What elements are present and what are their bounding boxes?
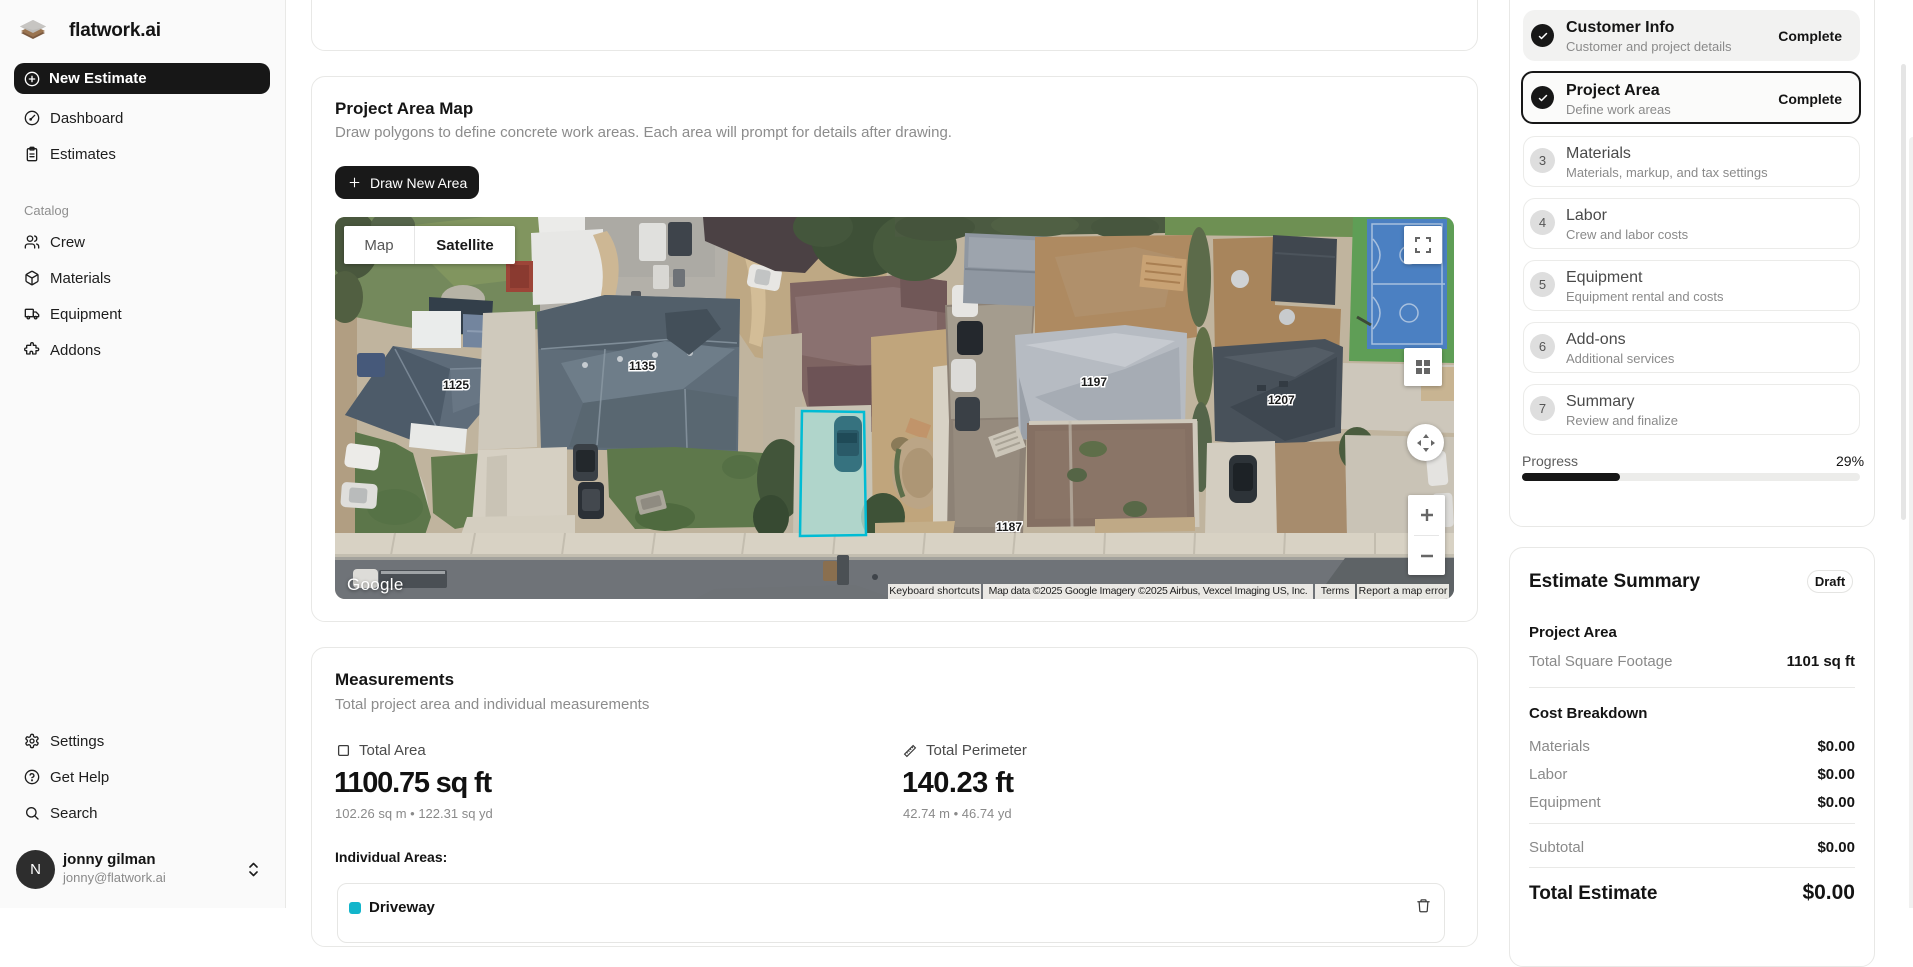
svg-text:1125: 1125 bbox=[443, 378, 469, 392]
svg-text:1135: 1135 bbox=[629, 359, 655, 373]
svg-text:1207: 1207 bbox=[1268, 393, 1295, 407]
svg-text:1197: 1197 bbox=[1081, 375, 1107, 389]
svg-text:1187: 1187 bbox=[996, 520, 1022, 534]
